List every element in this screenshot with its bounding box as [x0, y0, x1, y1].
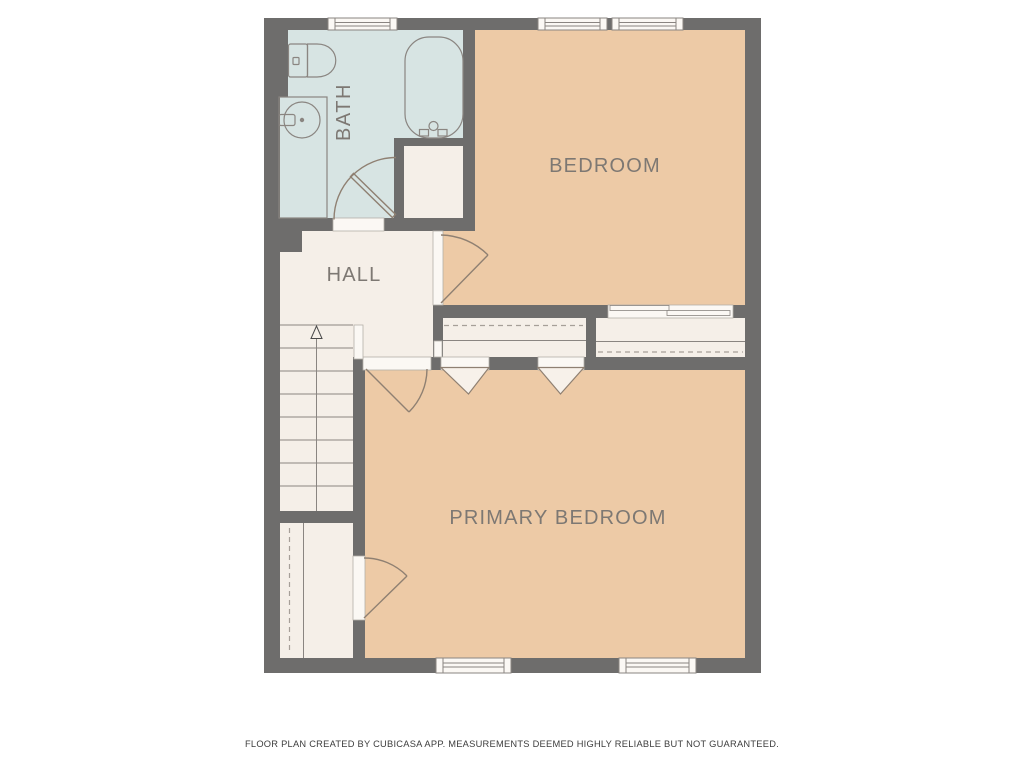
bath-left-wall-patch: [280, 30, 288, 97]
primary-window-right: [619, 658, 696, 673]
bath-closet-floor: [404, 146, 463, 218]
outer-wall-left: [264, 30, 280, 658]
hall-corner-wall: [280, 231, 302, 252]
bedroom-label: BEDROOM: [549, 155, 661, 177]
lower-closet-floor: [280, 523, 353, 658]
primary-bedroom-label: PRIMARY BEDROOM: [449, 507, 666, 529]
bedroom-window-left: [538, 18, 607, 30]
stair-railing-cap: [354, 325, 363, 359]
bath-door-opening: [333, 218, 384, 231]
stair-closet-wall: [264, 511, 365, 523]
bath-bedroom-wall: [463, 30, 475, 230]
floor-plan-page: BATH BEDROOM HALL PRIMARY BEDROOM FLOOR …: [0, 0, 1024, 768]
primary-door-opening: [363, 357, 431, 370]
bedroom-door-opening: [433, 231, 443, 305]
closet-door-opening: [353, 556, 365, 620]
floor-plan-drawing: BATH BEDROOM HALL PRIMARY BEDROOM FLOOR …: [0, 0, 1024, 768]
sliding-door: [608, 305, 733, 318]
bath-window: [328, 18, 397, 30]
hall-wall-cap: [434, 341, 442, 357]
sliding-door-panel-left: [610, 306, 669, 311]
footer-disclaimer: FLOOR PLAN CREATED BY CUBICASA APP. MEAS…: [245, 739, 779, 749]
sliding-closet-floor: [596, 318, 745, 357]
outer-wall-right: [745, 30, 761, 658]
bifold-closet-floor: [443, 318, 586, 357]
sliding-door-panel-right: [667, 311, 730, 316]
primary-window-left: [436, 658, 511, 673]
bedroom-window-right: [612, 18, 683, 30]
bath-closet-wall-top: [394, 138, 463, 146]
bath-closet-wall-left: [394, 146, 404, 218]
hall-label: HALL: [327, 264, 382, 286]
bath-label: BATH: [333, 83, 355, 141]
